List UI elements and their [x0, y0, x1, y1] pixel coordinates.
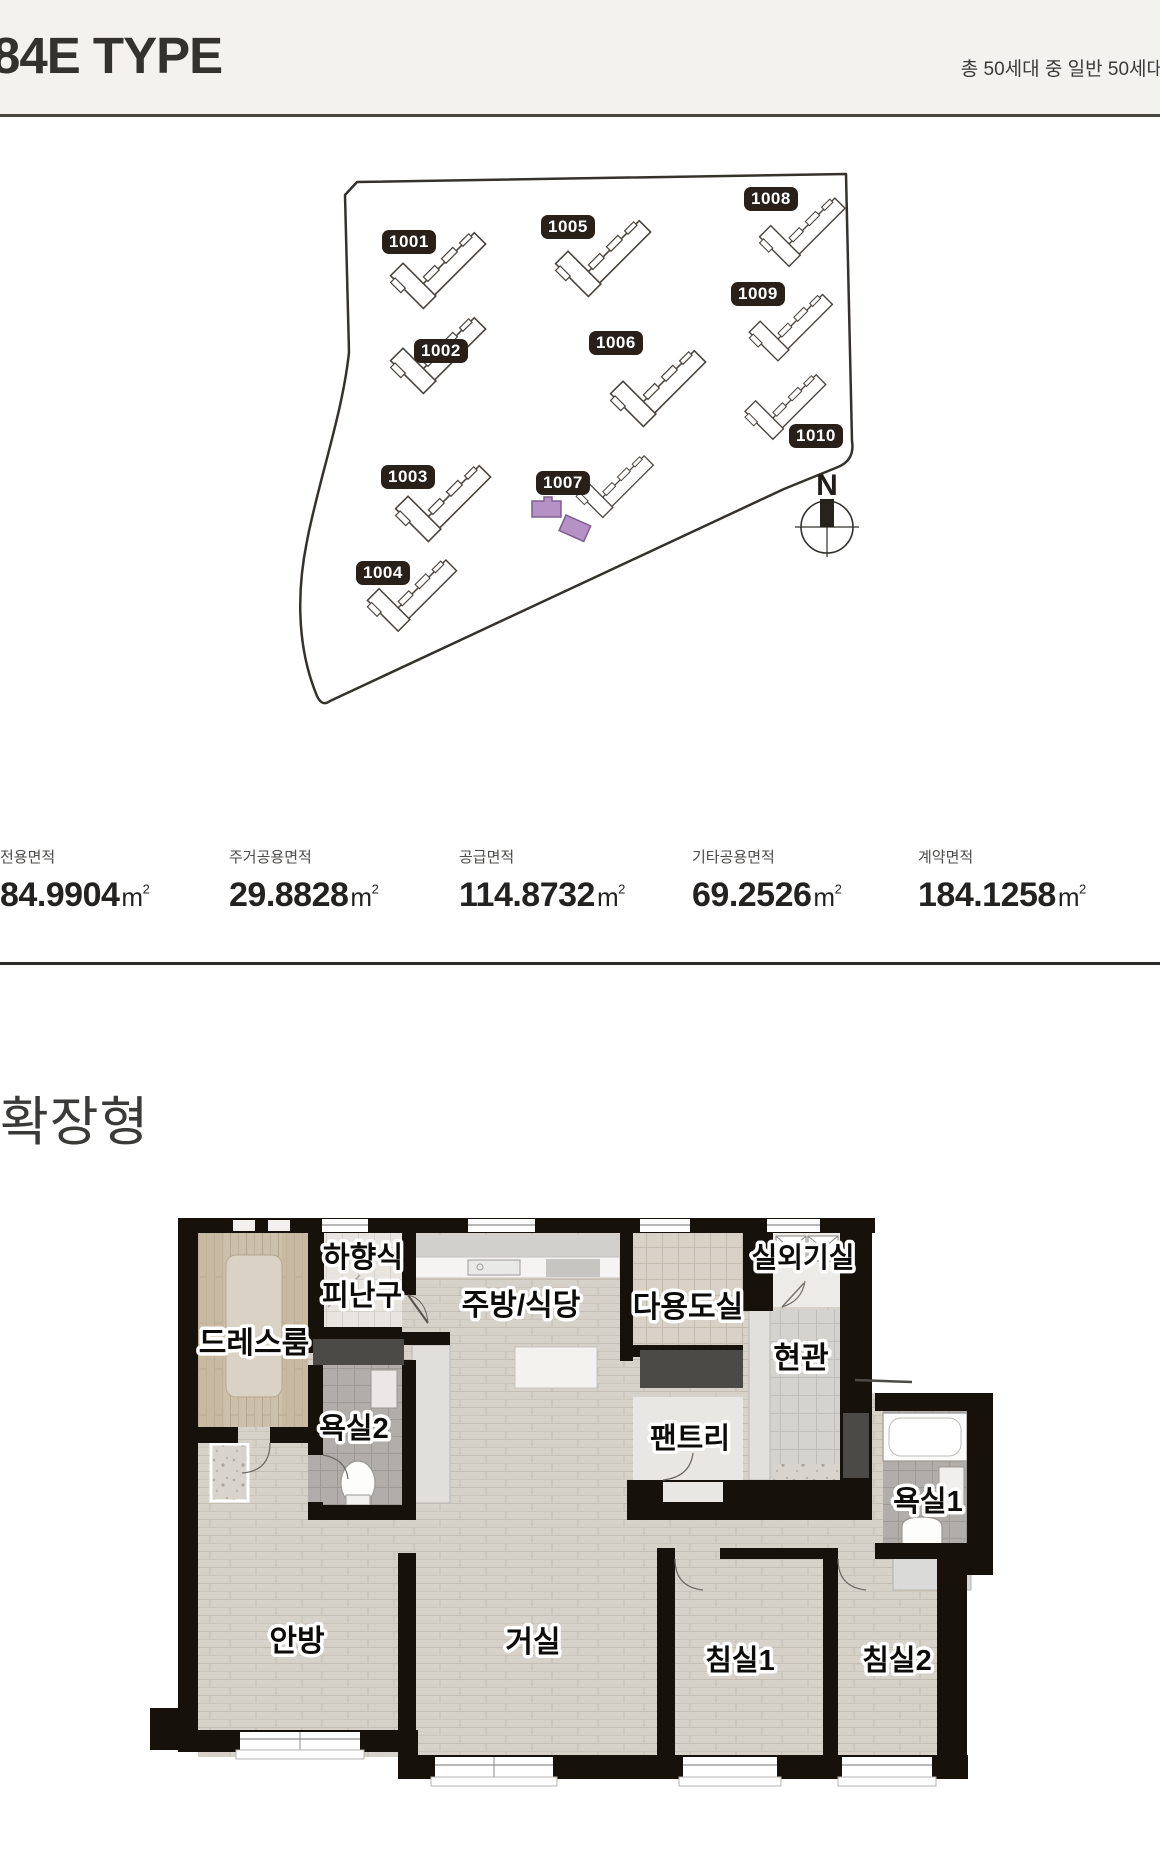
- stat-value: 184.1258m2: [918, 876, 1148, 915]
- kitchen-island: [515, 1347, 597, 1388]
- units-summary: 총 50세대 중 일반 50세대: [961, 54, 1160, 81]
- label-dressroom: 드레스룸: [199, 1327, 309, 1360]
- building-chip-1005: 1005: [541, 215, 595, 239]
- stat-value: 29.8828m2: [229, 876, 459, 915]
- section-divider: [0, 962, 1160, 965]
- utility-floor: [633, 1233, 743, 1345]
- building-chip-1008: 1008: [744, 187, 798, 211]
- label-outdoor-unit: 실외기실: [751, 1242, 854, 1273]
- stat-supply-area: 공급면적 114.8732m2: [459, 846, 689, 915]
- stat-label: 계약면적: [918, 846, 1148, 867]
- compass-needle: [820, 499, 834, 527]
- building-chip-1006: 1006: [589, 331, 643, 355]
- stat-label: 기타공용면적: [692, 846, 922, 867]
- floor-plan-drawing: 드레스룸 하향식 피난구 주방/식당 다용도실 실외기실 현관 욕실2 팬트리 …: [150, 1215, 995, 1800]
- kitchen-counter: [412, 1235, 620, 1278]
- building-chip-1009: 1009: [731, 282, 785, 306]
- building-chip-1004: 1004: [356, 561, 410, 585]
- area-stats: 전용면적 84.9904m2 주거공용면적 29.8828m2 공급면적 114…: [0, 846, 1160, 926]
- fridge-panel: [412, 1345, 450, 1503]
- stat-value: 84.9904m2: [0, 876, 230, 915]
- label-bedroom2: 침실2: [862, 1644, 932, 1677]
- label-pantry: 팬트리: [650, 1422, 730, 1455]
- compass: N: [795, 469, 859, 557]
- label-utility: 다용도실: [633, 1291, 743, 1324]
- label-hatch-line2: 피난구: [322, 1279, 402, 1312]
- stat-exclusive-area: 전용면적 84.9904m2: [0, 846, 230, 915]
- building-chip-1003: 1003: [381, 465, 435, 489]
- bath1-floor: [883, 1411, 967, 1545]
- site-boundary: [300, 174, 852, 703]
- stat-label: 공급면적: [459, 846, 689, 867]
- stat-label: 전용면적: [0, 846, 230, 867]
- stat-contract-area: 계약면적 184.1258m2: [918, 846, 1148, 915]
- label-hatch-line1: 하향식: [323, 1241, 403, 1274]
- page-title: 84E TYPE: [0, 26, 222, 85]
- compass-n-label: N: [816, 469, 838, 502]
- site-plan: N 1001 1002 1003 1004 1005 1006 1007 100…: [0, 117, 1160, 845]
- label-living-room: 거실: [505, 1626, 560, 1659]
- entrance-floor: [749, 1310, 840, 1480]
- floor-plan: 드레스룸 하향식 피난구 주방/식당 다용도실 실외기실 현관 욕실2 팬트리 …: [150, 1215, 995, 1800]
- building-chip-1002: 1002: [414, 339, 468, 363]
- stat-value: 69.2526m2: [692, 876, 922, 915]
- building-chip-1010: 1010: [789, 424, 843, 448]
- page: 84E TYPE 총 50세대 중 일반 50세대: [0, 0, 1160, 1860]
- label-entrance: 현관: [773, 1342, 828, 1375]
- label-master-bedroom: 안방: [269, 1625, 325, 1658]
- building-chip-1007: 1007: [536, 471, 590, 495]
- stat-value: 114.8732m2: [459, 876, 689, 915]
- label-bath2: 욕실2: [319, 1412, 389, 1445]
- plan-type-heading: 확장형: [0, 1080, 149, 1156]
- stat-other-common-area: 기타공용면적 69.2526m2: [692, 846, 922, 915]
- label-bath1: 욕실1: [893, 1485, 963, 1518]
- label-kitchen: 주방/식당: [462, 1289, 581, 1322]
- building-chip-1001: 1001: [382, 230, 436, 254]
- stat-common-residential-area: 주거공용면적 29.8828m2: [229, 846, 459, 915]
- label-bedroom1: 침실1: [705, 1644, 775, 1677]
- header: 84E TYPE 총 50세대 중 일반 50세대: [0, 0, 1160, 117]
- stat-label: 주거공용면적: [229, 846, 459, 867]
